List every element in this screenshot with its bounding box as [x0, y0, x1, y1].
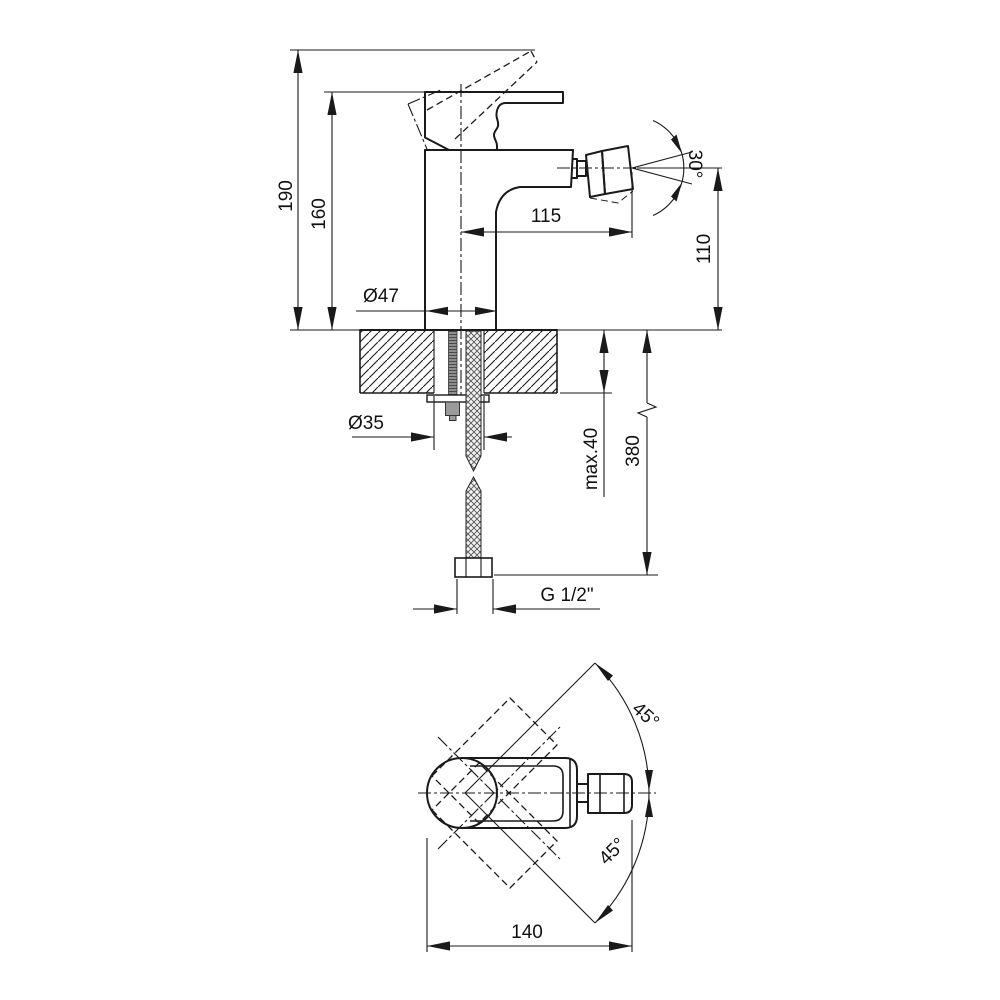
dim-label-thread-size: G 1/2"	[540, 585, 593, 606]
top-view: 45° 45° 140	[418, 663, 663, 952]
dim-label-spout-reach: 115	[531, 206, 561, 227]
ext-lines-thread	[457, 579, 493, 614]
hose-end-nut	[455, 558, 492, 577]
dim-label-overall-length: 140	[511, 922, 543, 943]
arc-arrow-30-upper	[671, 135, 682, 154]
arc-arrow-45-bottom	[595, 905, 613, 923]
dim-label-swing-upper: 45°	[628, 698, 663, 733]
handle-lever	[425, 92, 563, 150]
aerator-cone	[602, 146, 633, 194]
arc-arrow-45-top	[595, 663, 613, 681]
technical-drawing: 190 160 115 110 30°	[0, 0, 1000, 1000]
dim-break-380	[638, 403, 656, 417]
front-view: 190 160 115 110 30°	[276, 50, 722, 614]
arc-arrow-45-mid-lower	[645, 796, 653, 817]
dim-label-height-to-body: 160	[309, 198, 330, 230]
raised-lever-dashed	[427, 51, 537, 139]
counter-hatch-right	[484, 330, 557, 393]
arrow-d47-left	[426, 307, 448, 315]
hose-upper-segment	[466, 331, 481, 471]
mounting-nut	[446, 402, 460, 416]
faucet-body	[425, 92, 633, 330]
counter-hatch-left	[360, 330, 434, 393]
arc-arrow-45-mid-upper	[645, 770, 653, 791]
dim-label-spout-height: 110	[694, 234, 715, 264]
dim-label-hole-diameter: Ø35	[348, 413, 384, 434]
arrow-d47-right	[475, 307, 497, 315]
dim-label-aerator-angle: 30°	[684, 150, 705, 179]
dim-label-deck-thickness: max.40	[581, 428, 602, 490]
dim-label-total-height: 190	[276, 180, 297, 212]
countertop-section	[290, 330, 722, 393]
spout-underside	[496, 150, 573, 330]
top-dimensions: 45° 45° 140	[427, 663, 663, 952]
dim-label-body-diameter: Ø47	[363, 286, 399, 307]
hose-lower-segment	[466, 477, 481, 558]
arc-arrow-30-lower	[671, 183, 682, 202]
dim-label-swing-lower: 45°	[595, 834, 630, 869]
handle-raised-position	[408, 51, 537, 149]
dim-label-hose-length: 380	[623, 435, 644, 467]
handle-base	[425, 92, 449, 150]
drawing-page: 190 160 115 110 30°	[0, 0, 1000, 1000]
rod-tip	[450, 416, 457, 421]
threaded-rod	[449, 331, 458, 402]
